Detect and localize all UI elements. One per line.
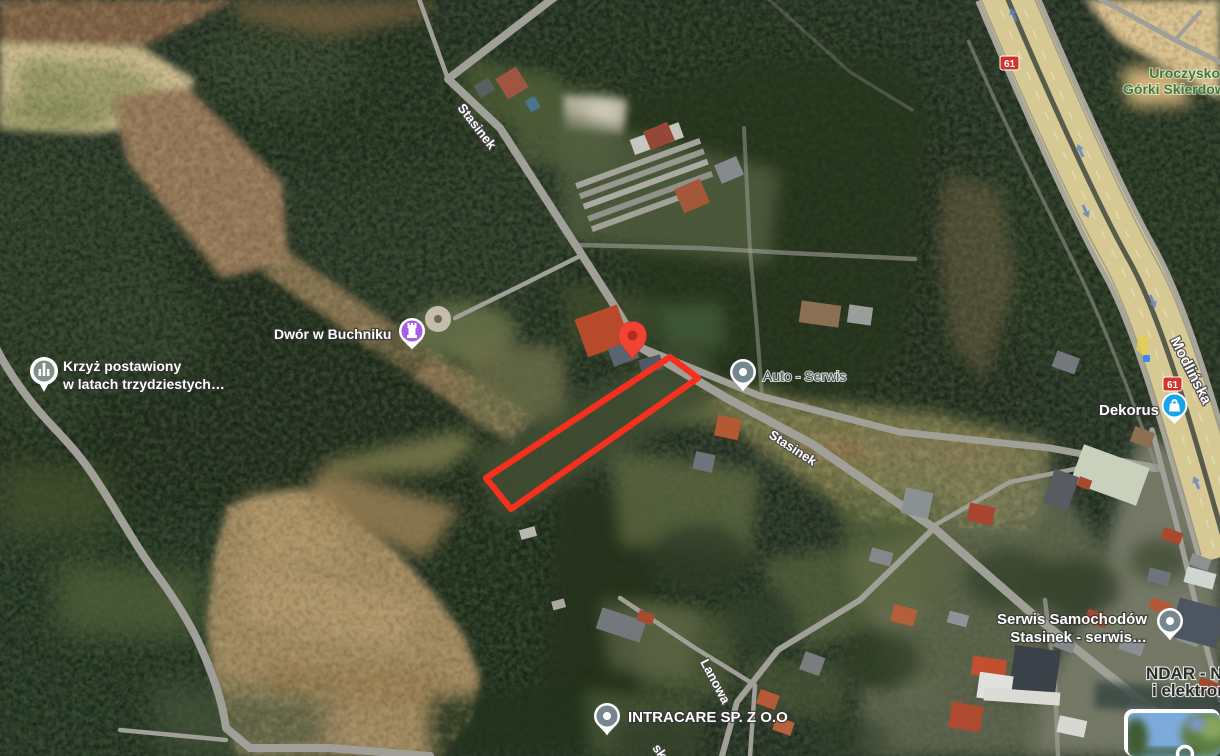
svg-text:Górki Skierdow: Górki Skierdow [1123, 81, 1220, 97]
svg-text:61: 61 [1167, 380, 1179, 391]
svg-text:Dwór w Buchniku: Dwór w Buchniku [274, 326, 391, 342]
svg-text:61: 61 [1004, 59, 1016, 70]
svg-text:Dekorus: Dekorus [1099, 402, 1159, 419]
svg-text:Auto - Serwis: Auto - Serwis [763, 368, 846, 384]
svg-text:i elektronar: i elektronar [1152, 681, 1220, 700]
svg-text:INTRACARE SP. Z O.O: INTRACARE SP. Z O.O [628, 709, 788, 726]
svg-text:Serwis Samochodów: Serwis Samochodów [997, 611, 1147, 628]
svg-text:w latach trzydziestych…: w latach trzydziestych… [62, 376, 225, 392]
svg-text:Uroczysko: Uroczysko [1149, 65, 1220, 81]
svg-text:Krzyż postawiony: Krzyż postawiony [63, 358, 181, 374]
svg-text:Stasinek - serwis…: Stasinek - serwis… [1010, 629, 1147, 646]
